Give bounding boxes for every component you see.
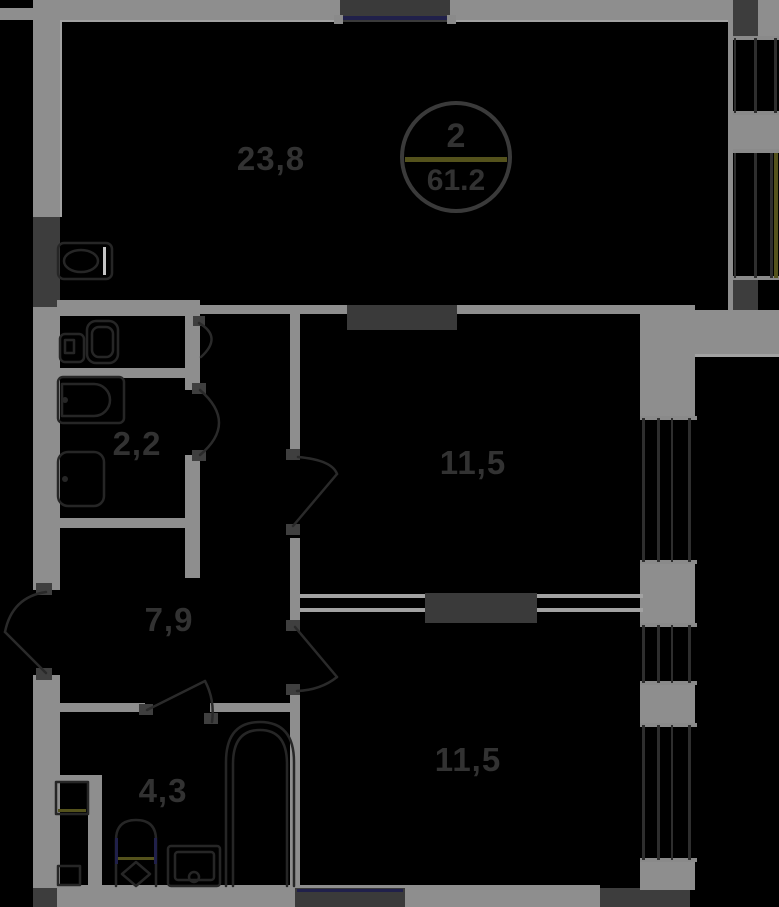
area-label-living: 23,8: [237, 140, 305, 178]
glazing-segment-3: [640, 723, 697, 862]
bedroom-left-wall-upper: [290, 310, 300, 455]
left-wall-upper: [33, 0, 60, 217]
doorway-slab-middle: [425, 593, 537, 623]
area-label-bedroom-bottom: 11,5: [435, 741, 501, 779]
bedroom-bottom-door: [286, 620, 337, 695]
bathroom-right-wall-upper: [185, 316, 200, 390]
glazing-segment-2: [640, 623, 697, 685]
left-wall-shaft: [33, 217, 60, 307]
bedroom-middle-door: [286, 449, 337, 535]
living-right-thin-wall: [728, 20, 733, 310]
bay-window-upper: [733, 36, 779, 115]
bathroom-right-wall-stub: [185, 528, 200, 578]
washing-machine-symbol: [56, 782, 88, 814]
entrance-door: [5, 583, 52, 680]
bathroom-door: [192, 383, 219, 461]
area-label-bathroom-small: 2,2: [113, 425, 162, 463]
loggia-divider-wall: [695, 310, 779, 357]
toilet-symbol: [115, 820, 157, 886]
bathroom-right-wall-lower: [185, 455, 200, 520]
left-wall-middle: [33, 307, 60, 590]
apartment-badge: 2 61.2: [400, 101, 512, 213]
loggia-divider-edge: [695, 354, 779, 357]
bathroom-large-door: [139, 681, 218, 724]
wc-toilet-symbol: [60, 334, 84, 362]
bathtub-large-symbol: [226, 722, 294, 886]
facade-pier-4: [640, 860, 695, 890]
room-top-wall-right: [457, 305, 643, 314]
bathroom-top-wall: [57, 300, 200, 316]
badge-divider: [405, 157, 507, 162]
left-wall-inner-face: [60, 20, 62, 217]
facade-glazing: [640, 416, 697, 862]
facade-pier-2: [640, 562, 695, 625]
facade-pier-1: [640, 305, 695, 418]
bay-pier: [733, 115, 779, 153]
facade-pier-3: [640, 683, 695, 725]
top-wall-stub-left: [0, 8, 33, 20]
corridor-bottom-wall-left: [57, 703, 145, 712]
badge-room-count: 2: [447, 119, 466, 153]
top-right-corner: [758, 0, 779, 38]
kitchen-sink-symbol: [58, 243, 112, 279]
sink-symbol: [168, 846, 220, 886]
niche-right-wall: [88, 783, 102, 885]
doorway-slab-top: [347, 305, 457, 330]
area-label-bedroom-middle: 11,5: [440, 444, 506, 482]
area-label-bathroom-large: 4,3: [139, 772, 188, 810]
shower-tray-symbol: [58, 452, 104, 506]
bay-window-lower: [733, 149, 779, 280]
left-wall-corner-dark: [33, 888, 59, 907]
bottom-window-glass: [297, 889, 403, 892]
wc-basin-symbol: [87, 321, 118, 363]
floor-plan: 23,8 2,2 7,9 11,5 4,3 11,5 2 61.2: [0, 0, 779, 907]
badge-total-area: 61.2: [427, 166, 485, 196]
top-window-glass: [342, 16, 448, 20]
top-window-cap-left: [334, 15, 343, 24]
glazing-segment-1: [640, 416, 697, 564]
bedroom-left-wall-middle: [290, 538, 300, 628]
corridor-top-wall: [200, 305, 347, 314]
corridor-bottom-wall-right: [210, 703, 293, 712]
area-label-hallway: 7,9: [145, 601, 194, 639]
top-window-cap-right: [447, 15, 456, 24]
windows: [295, 0, 779, 907]
bottom-wall-dark-right: [600, 888, 690, 907]
bathtub-symbol: [58, 377, 124, 423]
bathroom-bottom-wall: [57, 518, 200, 528]
top-right-pier-dark: [733, 0, 758, 38]
cabinet-symbol: [58, 866, 80, 885]
